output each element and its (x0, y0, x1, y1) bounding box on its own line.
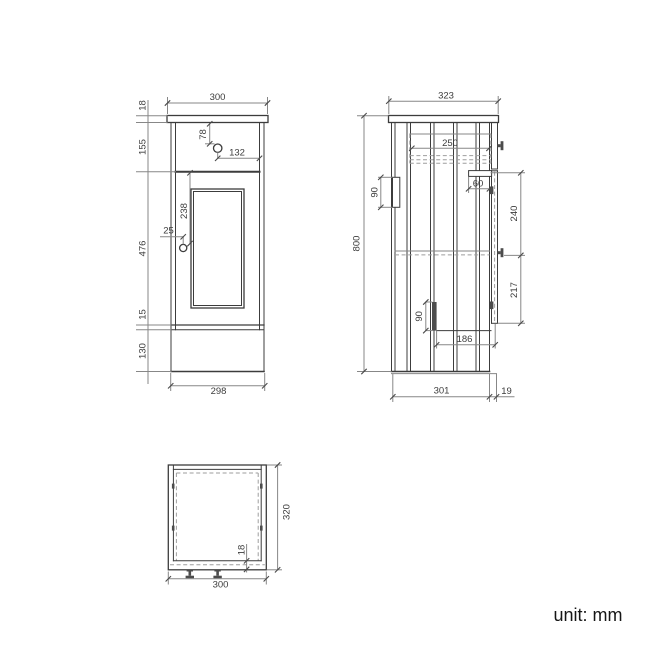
dim-top-depth: 320 (282, 504, 293, 520)
dim-runner-height: 90 (414, 311, 425, 322)
side-drawer-front (492, 123, 498, 170)
dim-door-knob-from-top-side: 240 (509, 206, 520, 222)
front-view-dimensions: 300 18 155 476 15 130 78 132 (137, 92, 271, 397)
top-view-dimensions: 18 300 320 (166, 462, 293, 590)
dim-side-depth-top: 323 (438, 91, 454, 102)
dim-door-knob-to-bottom: 217 (509, 282, 520, 298)
side-hinge-bottom (490, 302, 493, 310)
side-shelf-line (395, 251, 490, 255)
vanity-unit-technical-drawing: 300 18 155 476 15 130 78 132 (0, 0, 650, 650)
top-view: 18 300 320 (166, 462, 293, 590)
front-door-panel (191, 189, 244, 308)
top-view-outline (168, 465, 266, 570)
dim-top-front-thickness: 18 (237, 545, 248, 556)
side-drawer-runner (432, 302, 437, 331)
dim-side-height: 800 (352, 236, 363, 252)
dim-drawer-depth: 250 (442, 138, 458, 149)
side-view-dimensions: 323 800 250 90 60 (352, 91, 525, 402)
side-view: 323 800 250 90 60 (352, 91, 525, 402)
dim-top-width: 300 (213, 580, 229, 591)
dim-bottom-rail: 15 (138, 309, 149, 320)
dim-back-rail-height: 90 (369, 187, 380, 198)
dim-counter-thickness: 18 (138, 100, 149, 111)
dim-door-knob-from-top: 238 (179, 203, 190, 219)
side-knob-drawer (498, 141, 504, 150)
front-view: 300 18 155 476 15 130 78 132 (137, 92, 271, 397)
dim-door-knob-from-edge: 25 (163, 226, 174, 237)
unit-note: unit: mm (553, 605, 622, 625)
side-top-bracket (469, 171, 492, 177)
dim-front-width-top: 300 (210, 92, 226, 103)
drawer-knob (214, 144, 222, 152)
dim-drawer-height: 155 (138, 139, 149, 155)
dim-side-depth-body: 301 (434, 386, 450, 397)
dim-front-width-bottom: 298 (211, 386, 227, 397)
dim-bracket-width: 60 (473, 178, 484, 189)
dim-plinth-height: 130 (138, 343, 149, 359)
dim-drawer-knob-from-right: 132 (229, 148, 245, 159)
dim-drawer-knob-from-top: 78 (198, 129, 209, 140)
mounting-foot-right (213, 570, 221, 578)
door-knob (180, 244, 187, 251)
side-knob-door (498, 248, 504, 257)
dim-door-thickness: 19 (501, 386, 512, 397)
dim-runner-to-front: 186 (457, 334, 473, 345)
mounting-foot-left (186, 570, 194, 578)
side-view-outline (389, 116, 499, 374)
side-back-rail (393, 177, 400, 207)
dim-door-height: 476 (138, 241, 149, 257)
technical-drawing-page: 300 18 155 476 15 130 78 132 (0, 0, 650, 650)
